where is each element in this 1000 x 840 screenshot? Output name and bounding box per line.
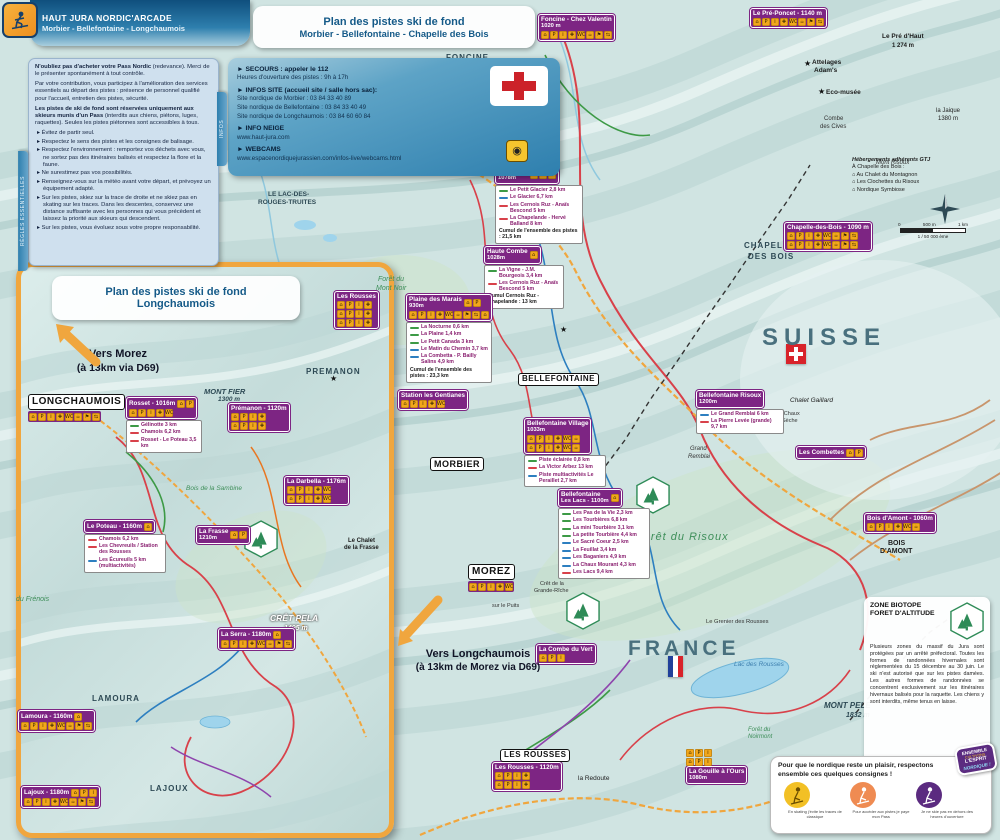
amenity-icon: ⌂ [481,311,489,319]
map-label: LE LAC-DES- [268,192,309,199]
map-label: Grand [690,446,707,452]
trail-label: Les Baganiers 4,9 km [573,555,626,561]
amenity-icon: ✚ [428,400,436,408]
trail-item: La mini Tourbière 3,1 km [562,526,646,532]
amenity-icon: ⌂ [464,299,472,307]
amenity-icon: P [876,523,884,531]
trail-item: La Combetta - P. Bailly Salins 4,9 km [410,354,488,366]
trail-label: La petite Tourbière 4,4 km [573,533,637,539]
map-label: la Jaique [936,108,960,114]
rules-bullet: Sur les pistes, skiez sur la trace de dr… [37,195,212,224]
station-les-combettes: Les Combettes⌂P [796,446,866,459]
station-plaine-des-marais: Plaine des Marais930m⌂P⌂Pi✚WC☕⚑⇆⌂La Noct… [406,294,492,383]
amenity-icon: ⌂ [337,319,345,327]
amenity-icon: WC [505,583,513,591]
amenity-icon: ✚ [814,232,822,240]
amenity-icon: ⌂ [337,301,345,309]
skier-icon [9,9,31,31]
station-title: BellefontaineLes Lacs - 1100m [561,491,609,505]
first-aid-cross-icon [490,66,548,106]
station-box: Plaine des Marais930m⌂P⌂Pi✚WC☕⚑⇆⌂ [406,294,492,321]
map-label: la Redoute [578,776,609,783]
map-label: LAJOUX [150,785,188,793]
consignes-title: Pour que le nordique reste un plaisir, r… [778,761,984,770]
trail-item: La Feuillat 3,4 km [562,548,646,554]
station-name: Bellefontaine Risoux [699,392,761,399]
amenity-icon-row: ⌂Pi✚WC☕⚑⇆ [29,413,100,421]
station-bellefontaine-les-lacs: BellefontaineLes Lacs - 1100m⌂Les Pas de… [558,489,650,579]
amenity-icon-row: ⌂ [74,713,82,721]
amenity-icon: i [557,654,565,662]
webcam-icon: ◉ [506,140,528,162]
trail-label: Chamois 6,2 km [99,537,139,543]
amenity-icon: i [419,400,427,408]
trail-item: Les Pas de la Vie 2,3 km [562,511,646,517]
amenity-icon: ✚ [780,18,788,26]
station-box: Le Poteau - 1160m⌂ [84,520,155,533]
biotope-subtitle: FORET D'ALTITUDE [870,610,946,618]
station-elevation: 1200m [699,399,761,405]
amenity-icon-row: ⌂Pi✚WC☕⚑⇆⌂ [409,311,489,319]
town-name: LONGCHAUMOIS [28,394,125,410]
amenity-icon: ✚ [258,422,266,430]
amenity-icon: ⚑ [275,640,283,648]
trail-item: Le Matin du Chemin 3,7 km [410,347,488,353]
amenity-icon: WC [57,722,65,730]
info-line: ► WEBCAMS [237,145,551,154]
amenity-icon-row: ⌂Pi✚WC [129,409,173,417]
station-header: La Serra - 1180m⌂ [221,630,292,639]
town-amenity-icons: ⌂Pi✚WC☕⚑⇆ [28,411,101,422]
amenity-icon: ☕ [266,640,274,648]
amenity-icon-row: ⌂ [611,494,619,502]
amenity-icon-row: ⌂P [177,400,194,408]
consignes-pictos: En skating j'évite les traces de classiq… [778,779,984,819]
station-elevation: 1078m [498,175,528,181]
amenity-icon: ⌂ [686,749,694,757]
station-haute-combe: Haute Combe1028m⌂La Vigne - J.M. Bourgeo… [484,246,564,309]
amenity-icon: ⌂ [527,435,535,443]
amenity-icon: P [240,422,248,430]
amenity-icon: i [805,232,813,240]
amenity-icon: P [30,722,38,730]
trail-label: Les Chevreuils / Station des Rousses [99,544,162,556]
amenity-icon: ✚ [894,523,902,531]
amenity-icon: i [249,422,257,430]
amenity-icon: i [47,413,55,421]
consigne-caption: Pour accéder aux pistes je paye mon Pass [850,809,912,819]
scale-bar [900,228,966,233]
station-box: Les Rousses - 1120m⌂Pi✚⌂Pi✚ [492,762,562,791]
station-name: Les Rousses [337,293,376,300]
trail-color-dash [410,327,419,329]
station-name: La Darbella - 1176m [287,478,346,485]
trail-item: Le Petit Canada 3 km [410,340,488,346]
station-box: Lajoux - 1180m⌂Pi⌂Pi✚WC☕⚑⇆ [21,786,100,808]
amenity-icon: ⌂ [231,413,239,421]
amenity-icon: i [885,523,893,531]
amenity-icon-row: ⌂P [846,449,863,457]
amenity-icon: WC [323,486,331,494]
trail-label: Le Matin du Chemin 3,7 km [421,347,488,353]
station-les-rousses-sud: Les Rousses - 1120m⌂Pi✚⌂Pi✚ [492,762,562,791]
station-title: Bois d'Amont - 1060m [867,515,933,522]
map-label: des Cives [820,124,846,130]
trail-label: Le Glacier 6,7 km [510,195,553,201]
station-name: La Frasse [199,528,228,535]
station-box: La Darbella - 1176m⌂Pi✚WC⌂Pi✚WC [284,476,349,505]
consigne-picto-icon [850,782,912,808]
map-label: Le Pré d'Haut [882,34,924,41]
map-label: du Frénois [16,596,49,603]
amenity-icon: P [762,18,770,26]
amenity-icon: i [305,495,313,503]
trail-item: La Plaine 1,4 km [410,332,488,338]
station-les-rousses-inset: Les Rousses⌂Pi✚⌂Pi✚⌂Pi✚ [334,291,379,329]
amenity-icon-row: ⌂P [230,531,247,539]
map-label: BOIS [888,540,905,547]
amenity-icon: ✚ [522,781,530,789]
biotope-text: Plusieurs zones du massif du Jura sont p… [870,644,984,705]
trail-color-dash [88,539,97,541]
amenity-icon: ⌂ [787,241,795,249]
station-header: Le Poteau - 1160m⌂ [87,522,152,531]
amenity-icon: P [695,758,703,766]
amenity-icon-row: ⌂Pi✚WC☕ [867,523,920,531]
amenity-icon: ⌂ [221,640,229,648]
amenity-icon: ⚑ [75,722,83,730]
trail-label: Chamois 6,2 km [141,430,181,436]
amenity-icon: ⌂ [753,18,761,26]
town-name: BELLEFONTAINE [518,373,599,386]
info-line: Site nordique de Longchaumois : 03 84 60… [237,113,551,122]
station-header: Chapelle-des-Bois - 1090 m [787,224,869,231]
amenity-icon: P [536,444,544,452]
station-header: BellefontaineLes Lacs - 1100m⌂ [561,491,619,505]
station-lajoux: Lajoux - 1180m⌂Pi⌂Pi✚WC☕⚑⇆ [21,786,100,808]
trail-item: Les Lacs 9,4 km [562,570,646,576]
station-le-poteau: Le Poteau - 1160m⌂Chamois 6,2 kmLes Chev… [84,520,166,573]
trail-label: La Chaux Mourant 4,3 km [573,563,636,569]
amenity-icon: ✚ [568,31,576,39]
trail-color-dash [88,546,97,548]
station-title: Les Rousses - 1120m [495,764,559,771]
amenity-icon: ⇆ [850,241,858,249]
biotope-panel: ZONE BIOTOPE FORET D'ALTITUDE Plusieurs … [864,597,990,765]
amenity-icon: ✚ [258,413,266,421]
town-name: LES ROUSSES [500,749,570,762]
trail-label: La Plaine 1,4 km [421,332,461,338]
rules-paragraph-2: Par votre contribution, vous participez … [35,81,212,102]
station-title: Haute Combe1028m [487,248,528,262]
scale-ratio: 1 / 50 000 ème [898,234,968,239]
station-bellefontaine-village: Bellefontaine Village1033m⌂Pi✚WC☕⌂Pi✚WC☕… [524,418,606,487]
station-title: Lamoura - 1160m [21,713,72,720]
amenity-icon: ⌂ [401,400,409,408]
trail-item: Piste multiactivités Le Peraillet 2,7 km [528,473,602,485]
amenity-icon: ⇆ [284,640,292,648]
amenity-icon-row: ⌂Pi✚WC☕ [527,444,580,452]
station-title: La Serra - 1180m [221,631,271,638]
poi-star-icon: ★ [330,375,337,383]
amenity-icon-row: ⌂Pi✚WC [401,400,445,408]
station-la-serra: La Serra - 1180m⌂⌂Pi✚WC☕⚑⇆ [218,628,295,650]
station-elevation: 1210m [199,535,228,541]
map-label: CRÊT PELA [270,614,318,623]
amenity-icon-row: ⌂ [530,251,538,259]
amenity-icon: ✚ [56,413,64,421]
amenity-icon-row: ⌂Pi✚WC☕⚑⇆ [753,18,824,26]
trail-label: La Combetta - P. Bailly Salins 4,9 km [421,354,488,366]
amenity-icon: P [346,319,354,327]
station-title: Les Combettes [799,449,844,456]
trail-item: La Vigne - J.M. Bourgeois 3,4 km [488,268,560,280]
trail-color-dash [562,572,571,574]
amenity-icon: ✚ [554,444,562,452]
trail-item: Chamois 6,2 km [88,537,162,543]
inset-title: Plan des pistes ski de fond [52,286,300,298]
station-elevation: 1028m [487,255,528,261]
trail-label: La Nocturne 0,6 km [421,325,469,331]
station-name: La Serra - 1180m [221,631,271,638]
trail-color-dash [130,425,139,427]
amenity-icon: WC [437,400,445,408]
biotope-title: ZONE BIOTOPE [870,602,946,610]
station-title: Bellefontaine Risoux1200m [699,392,761,406]
amenity-icon: ⌂ [273,631,281,639]
esprit-nordique-badge: ENSEMBLE CULTIVONS L'ESPRIT NORDIQUE ! [954,742,998,777]
trail-item: Cumul Cernois Ruz - Chapelande : 13 km [488,294,560,306]
amenity-icon: P [418,311,426,319]
amenity-icon: i [805,241,813,249]
station-header: Foncine - Chez Valentin1020 m [541,16,612,30]
station-box: Prémanon - 1120m⌂Pi✚⌂Pi✚ [228,403,290,432]
station-header: Les Combettes⌂P [799,448,863,457]
map-title: Plan des pistes ski de fond [253,16,535,28]
station-header: Rosset - 1016m⌂P [129,399,194,408]
station-header: La Frasse1210m⌂P [199,528,247,542]
station-title: La Frasse1210m [199,528,228,542]
amenity-icon-row: ⌂P [464,299,481,307]
rules-bullet: Renseignez-vous sur la météo avant votre… [37,179,212,193]
amenity-icon-row: ⌂Pi✚ [337,310,372,318]
map-label: Le Grenier des Rousses [706,620,769,626]
amenity-icon: ⌂ [530,251,538,259]
amenity-icon: ☕ [586,31,594,39]
amenity-icon: ☕ [66,722,74,730]
info-tab: INFOS [217,92,227,166]
station-name: Le Poteau - 1160m [87,523,142,530]
trail-item: Cumul de l'ensemble des pistes : 23,3 km [410,368,488,380]
station-header: La Darbella - 1176m [287,478,346,485]
map-label: MONT FIER [204,388,245,396]
consigne-item: Pour accéder aux pistes je paye mon Pass [850,782,912,819]
amenity-icon: ⌂ [495,772,503,780]
trail-color-dash [410,334,419,336]
amenity-icon: ✚ [314,486,322,494]
trail-label: Piste multiactivités Le Peraillet 2,7 km [539,473,602,485]
map-subtitle: Morbier - Bellefontaine - Chapelle des B… [253,29,535,39]
amenity-icon: P [80,789,88,797]
amenity-icon: ⌂ [230,531,238,539]
amenity-icon: WC [65,413,73,421]
map-label: Remblai [688,454,710,460]
trail-color-dash [528,475,537,477]
amenity-icon: i [42,798,50,806]
consigne-item: En skating j'évite les traces de classiq… [784,782,846,819]
amenity-icon-row: ⌂Pi✚WC☕⚑⇆ [24,798,95,806]
amenity-icon: P [855,449,863,457]
rules-bullet: Respectez l'environnement : remportez vo… [37,147,212,168]
amenity-icon: WC [323,495,331,503]
trail-item: Les Cernois Ruz - Anaïs Bescond 5 km [488,281,560,293]
station-box: Station les Gentianes⌂Pi✚WC [398,390,468,410]
station-title: Prémanon - 1120m [231,405,287,412]
amenity-icon: i [355,319,363,327]
amenity-icon: P [240,413,248,421]
amenity-icon: ⌂ [787,232,795,240]
trail-color-dash [528,467,537,469]
rules-paragraph-3: Les pistes de ski de fond sont réservées… [35,106,212,127]
map-label: sur le Puits [492,604,519,610]
amenity-icon: WC [165,409,173,417]
amenity-icon: P [346,301,354,309]
amenity-icon: ✚ [364,310,372,318]
amenity-icon: WC [60,798,68,806]
trail-label: Les Cernois Ruz - Anaïs Bescond 5 km [510,203,579,215]
amenity-icon: ⌂ [469,583,477,591]
station-box: BellefontaineLes Lacs - 1100m⌂ [558,489,622,507]
amenity-icon: i [249,413,257,421]
amenity-icon: ⌂ [231,422,239,430]
station-elevation: 930m [409,303,462,309]
amenity-icon: ✚ [248,640,256,648]
station-name: Haute Combe [487,248,528,255]
amenity-icon: ✚ [364,319,372,327]
amenity-icon-row: ⌂Pi✚ [231,422,266,430]
trail-color-dash [562,542,571,544]
station-name: Les Combettes [799,449,844,456]
trail-label: Le Petit Glacier 2,8 km [510,188,565,194]
station-header: Lamoura - 1160m⌂ [21,712,92,721]
station-header: Bois d'Amont - 1060m [867,515,933,522]
amenity-icon-row: ⌂Pi✚WC [287,486,331,494]
station-title: Lajoux - 1180m [24,789,69,796]
amenity-icon: i [559,31,567,39]
info-line: www.haut-jura.com [237,134,551,143]
amenity-icon: ⇆ [87,798,95,806]
station-station-les-gentianes: Station les Gentianes⌂Pi✚WC [398,390,468,410]
amenity-icon: ⇆ [84,722,92,730]
amenity-icon: i [487,583,495,591]
amenity-icon: P [239,531,247,539]
amenity-icon: i [771,18,779,26]
trail-label: Le Petit Canada 3 km [421,340,473,346]
amenity-icon-row: ⌂Pi✚ [337,301,372,309]
rules-tab: RÈGLES ESSENTIELLES [18,151,28,271]
trail-color-dash [499,197,508,199]
station-title: Chapelle-des-Bois - 1090 m [787,224,869,231]
station-name: Prémanon - 1120m [231,405,287,412]
gtj-line: ⌂ Au Chalet du Montagnon [852,172,930,179]
amenity-icon: ⇆ [604,31,612,39]
map-label: de la Frasse [344,545,379,551]
amenity-icon: ⌂ [337,310,345,318]
amenity-icon-row: ⌂ [144,523,152,531]
station-bois-damont: Bois d'Amont - 1060m⌂Pi✚WC☕ [864,513,936,533]
trail-label: Cumul de l'ensemble des pistes : 23,3 km [410,368,488,380]
station-la-gouille-a-lours: ⌂Pi⌂PiLa Gouille à l'Ours1080m [686,748,747,784]
trail-item: Les Tourbières 6,8 km [562,518,646,524]
trail-item: La Chaux Mourant 4,3 km [562,563,646,569]
amenity-icon: P [504,781,512,789]
station-box: Foncine - Chez Valentin1020 m⌂Pi✚WC☕⚑⇆ [538,14,615,41]
station-title: Le Poteau - 1160m [87,523,142,530]
amenity-icon: P [296,495,304,503]
station-name: Foncine - Chez Valentin [541,16,612,23]
map-label: Crêt de la [540,582,564,588]
trail-item: Les Chevreuils / Station des Rousses [88,544,162,556]
town-label-les-rousses: LES ROUSSES [500,749,570,762]
amenity-icon: ⌂ [527,444,535,452]
town-name: MOREZ [468,564,515,580]
amenity-icon-row: ⌂Pi✚ [495,772,530,780]
station-title: Le Pré-Poncet - 1140 m [753,10,822,17]
amenity-icon: i [545,444,553,452]
trail-item: La Victor Arbez 13 km [528,465,602,471]
compass-rose-icon [930,192,960,226]
station-chapelle-des-bois: Chapelle-des-Bois - 1090 m⌂Pi✚WC☕⚑⇆⌂Pi✚W… [784,222,872,251]
station-box: La Gouille à l'Ours1080m [686,766,747,784]
amenity-icon: WC [257,640,265,648]
amenity-icon: ⌂ [21,722,29,730]
station-header: Le Pré-Poncet - 1140 m [753,10,824,17]
station-le-glacier: Le Glacier1078m⌂PiLe Petit Glacier 2,8 k… [495,166,583,244]
amenity-icon-row: ⌂Pi✚WC☕ [527,435,580,443]
amenity-icon: ⇆ [816,18,824,26]
trail-item: Gélinotte 3 km [130,423,198,429]
amenity-icon: ☕ [69,798,77,806]
trail-color-dash [562,565,571,567]
amenity-icon: ⌂ [495,781,503,789]
town-amenity-icons: ⌂Pi✚WC [468,581,514,592]
station-name: Chapelle-des-Bois - 1090 m [787,224,869,231]
rules-list: Évitez de partir seul.Respectez le sens … [35,130,212,232]
station-name: Rosset - 1016m [129,400,175,407]
amenity-icon: ✚ [814,241,822,249]
trail-item: Le Petit Glacier 2,8 km [499,188,579,194]
poi-star-icon: ★ [560,326,567,334]
station-name: La Gouille à l'Ours [689,768,744,775]
station-header: Bellefontaine Risoux1200m [699,392,761,406]
trail-label: Les Lacs 9,4 km [573,570,613,576]
map-label: FRANCE [628,638,740,659]
info-line: ► INFO NEIGE [237,124,551,133]
amenity-icon: ☕ [572,435,580,443]
poi-star-icon: ★ [804,60,811,68]
amenity-icon: ☕ [454,311,462,319]
station-box: Bellefontaine Village1033m⌂Pi✚WC☕⌂Pi✚WC☕ [524,418,591,454]
station-name: Bois d'Amont - 1060m [867,515,933,522]
map-label: Adam's [814,68,837,75]
town-name: MORBIER [430,457,484,471]
amenity-icon: P [473,299,481,307]
station-title: Foncine - Chez Valentin1020 m [541,16,612,30]
amenity-icon-row: ⌂Pi✚WC☕⚑⇆ [787,241,858,249]
map-label: Mont Noir [376,285,406,292]
map-label: Le Chalet [348,538,375,544]
station-header: La Gouille à l'Ours1080m [689,768,744,782]
